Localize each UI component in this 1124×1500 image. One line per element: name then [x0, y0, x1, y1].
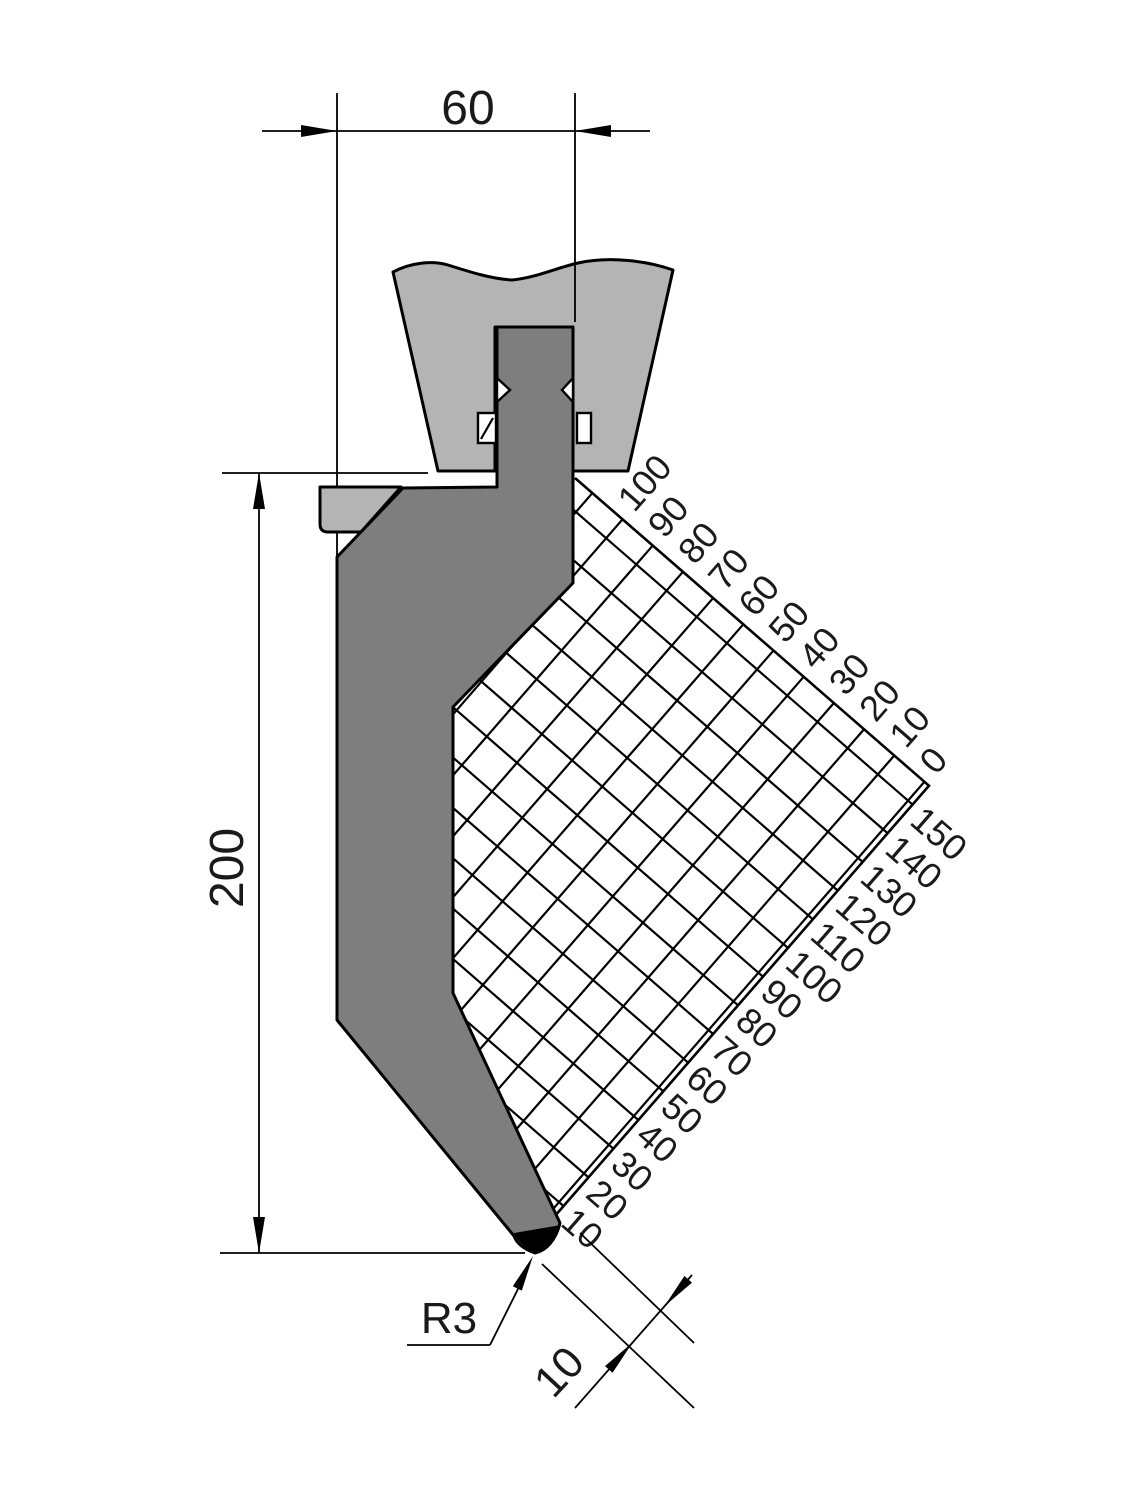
arrow-icon: [513, 1256, 533, 1291]
grid-line: [440, 703, 834, 1156]
grid-line: [531, 782, 925, 1235]
arrow-icon: [253, 473, 265, 509]
cad-sheet: 1009080706050403020100 15014013012011010…: [0, 0, 1124, 1500]
tip-radius-text: R3: [421, 1294, 477, 1343]
grid-line: [559, 497, 913, 805]
dim-width-text: 60: [441, 82, 494, 135]
arrow-icon: [575, 125, 611, 137]
grid-top-axis: 1009080706050403020100: [609, 447, 981, 782]
dim-height-text: 200: [201, 828, 254, 908]
arrow-icon: [301, 125, 337, 137]
grid-right-axis: 150140130120110100908070605040302010: [554, 798, 975, 1270]
arrow-icon: [605, 1342, 633, 1372]
arrow-icon: [253, 1217, 265, 1253]
clamp-slot-right: [577, 413, 591, 443]
grid-line: [459, 612, 813, 920]
press-brake-punch-drawing: 1009080706050403020100 15014013012011010…: [0, 0, 1124, 1500]
tip-offset-text: 10: [525, 1338, 594, 1407]
arrow-icon: [664, 1276, 692, 1306]
leader-line: [490, 1285, 520, 1345]
grid-line: [409, 669, 763, 977]
grid-line: [509, 554, 863, 862]
grid-line: [434, 640, 788, 948]
